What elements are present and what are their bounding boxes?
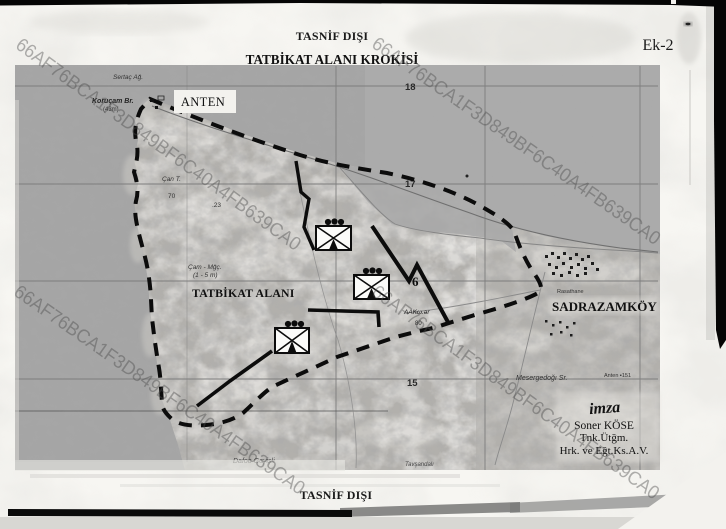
- svg-text:18: 18: [405, 82, 416, 93]
- svg-text:Çam - Mğç.: Çam - Mğç.: [188, 264, 222, 271]
- svg-text:Çan T.: Çan T.: [162, 176, 181, 183]
- svg-text:TASNİF DIŞI: TASNİF DIŞI: [300, 488, 373, 502]
- svg-text:Tavşandalı: Tavşandalı: [405, 462, 434, 468]
- svg-text:TASNİF DIŞI: TASNİF DIŞI: [296, 29, 369, 43]
- svg-text:6: 6: [412, 274, 419, 289]
- svg-text:.23: .23: [212, 202, 221, 209]
- svg-text:15: 15: [407, 378, 418, 389]
- svg-text:Anten ▪151: Anten ▪151: [604, 373, 631, 379]
- svg-text:Mesergedoğı Sr.: Mesergedoğı Sr.: [516, 375, 568, 382]
- svg-text:Ek-2: Ek-2: [642, 37, 673, 54]
- svg-text:Sertaç Ağ.: Sertaç Ağ.: [113, 74, 143, 81]
- svg-text:ANTEN: ANTEN: [181, 95, 225, 109]
- svg-text:70: 70: [168, 193, 176, 200]
- svg-text:TATBİKAT ALANI: TATBİKAT ALANI: [192, 286, 295, 300]
- svg-text:17: 17: [405, 179, 416, 190]
- svg-text:(1 - 5 m): (1 - 5 m): [193, 272, 218, 279]
- svg-text:Rasathane: Rasathane: [557, 289, 584, 295]
- svg-text:SADRAZAMKÖY: SADRAZAMKÖY: [552, 299, 657, 314]
- svg-text:imza: imza: [589, 399, 621, 418]
